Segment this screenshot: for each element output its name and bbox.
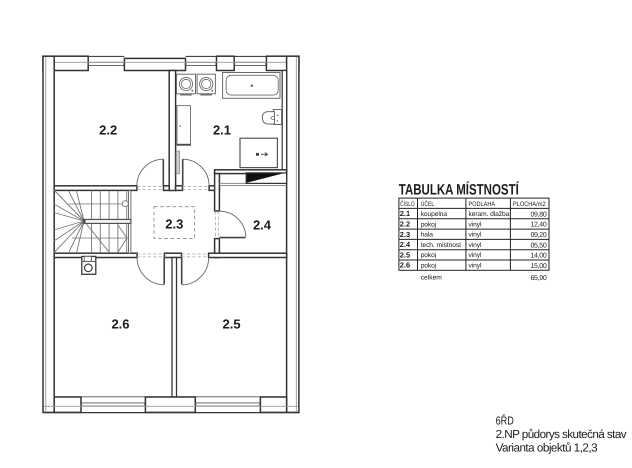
svg-text:2.5: 2.5 <box>400 250 410 259</box>
svg-text:vinyl: vinyl <box>469 232 482 239</box>
svg-text:2.2: 2.2 <box>99 122 117 137</box>
svg-text:ÚČEL: ÚČEL <box>421 200 435 208</box>
svg-text:09,20: 09,20 <box>530 232 546 239</box>
svg-text:vinyl: vinyl <box>469 252 482 259</box>
svg-text:15,00: 15,00 <box>530 263 546 270</box>
svg-text:2.3: 2.3 <box>165 216 183 231</box>
svg-text:2.2: 2.2 <box>400 220 410 229</box>
svg-text:koupelna: koupelna <box>421 211 448 218</box>
svg-text:pokoj: pokoj <box>421 263 437 270</box>
svg-text:pokoj: pokoj <box>421 221 437 228</box>
svg-text:12,40: 12,40 <box>530 222 546 229</box>
svg-text:PODLAHA: PODLAHA <box>469 201 496 208</box>
svg-text:2.5: 2.5 <box>223 317 241 332</box>
svg-text:2.1: 2.1 <box>213 122 231 137</box>
svg-text:vinyl: vinyl <box>469 221 482 228</box>
svg-text:2.NP půdorys skutečná stav: 2.NP půdorys skutečná stav <box>496 428 627 441</box>
svg-text:2.4: 2.4 <box>400 240 411 249</box>
svg-text:2.1: 2.1 <box>400 209 410 218</box>
svg-text:vinyl: vinyl <box>469 263 482 270</box>
svg-text:2.3: 2.3 <box>400 230 410 239</box>
svg-text:celkem: celkem <box>421 275 443 282</box>
svg-text:65,90: 65,90 <box>530 275 546 282</box>
svg-text:PLOCHA/m2: PLOCHA/m2 <box>513 201 546 208</box>
svg-text:09,80: 09,80 <box>530 211 546 218</box>
svg-text:ČÍSLO: ČÍSLO <box>400 200 415 208</box>
svg-text:hala: hala <box>421 232 434 239</box>
svg-text:vinyl: vinyl <box>469 242 482 249</box>
svg-text:05,50: 05,50 <box>530 242 546 249</box>
svg-text:pokoj: pokoj <box>421 252 437 259</box>
svg-text:2.6: 2.6 <box>400 261 410 270</box>
svg-text:TABULKA MÍSTNOSTÍ: TABULKA MÍSTNOSTÍ <box>399 181 520 199</box>
svg-text:2.6: 2.6 <box>111 317 129 332</box>
svg-text:Varianta objektů 1,2,3: Varianta objektů 1,2,3 <box>496 441 598 454</box>
svg-text:2.4: 2.4 <box>253 218 272 233</box>
svg-text:6ŘD: 6ŘD <box>496 414 514 428</box>
svg-text:14,00: 14,00 <box>530 253 546 260</box>
svg-text:keram. dlažba: keram. dlažba <box>469 211 510 218</box>
svg-text:tech. místnost: tech. místnost <box>421 242 461 249</box>
